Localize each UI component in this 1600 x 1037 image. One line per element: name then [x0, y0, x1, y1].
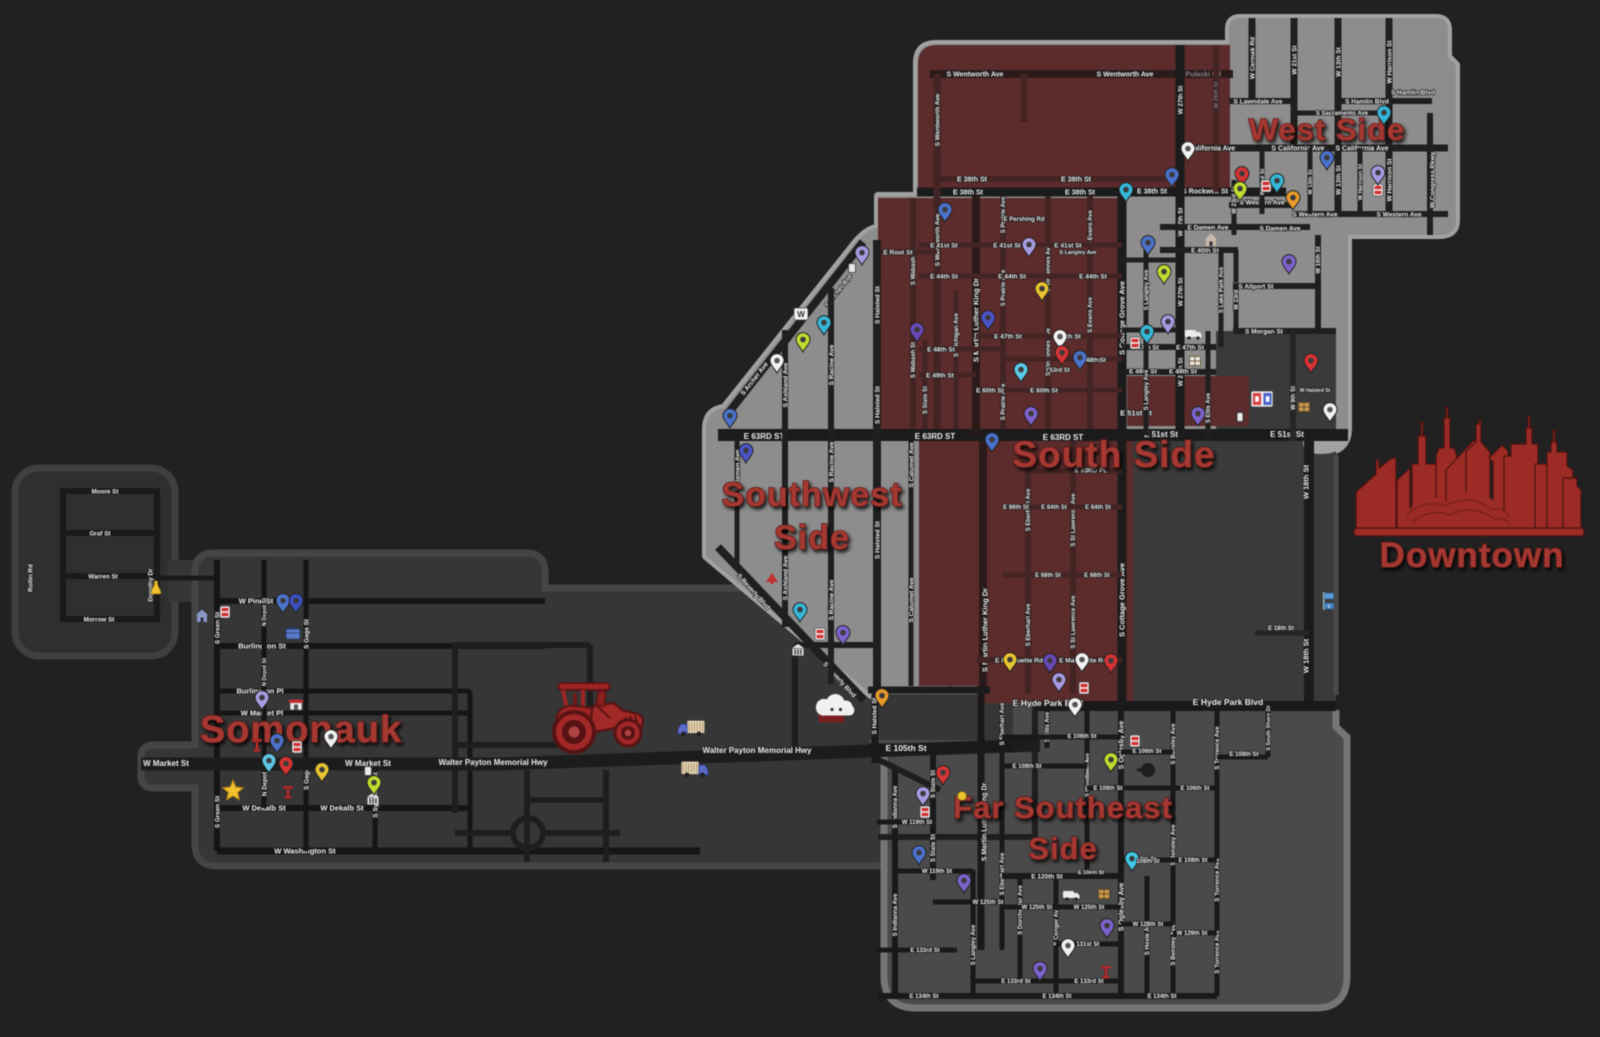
svg-text:W: W	[797, 310, 805, 319]
svg-text:S Bensley Ave: S Bensley Ave	[1171, 924, 1177, 966]
svg-text:E 41st St: E 41st St	[930, 242, 958, 249]
svg-text:S Evans Ave: S Evans Ave	[1088, 297, 1094, 333]
svg-text:S Wentworth Ave: S Wentworth Ave	[934, 213, 941, 266]
svg-text:E 64th St: E 64th St	[1085, 505, 1111, 511]
svg-text:E 133rd St: E 133rd St	[910, 948, 939, 954]
svg-text:S Wabash St: S Wabash St	[911, 342, 917, 378]
svg-text:S Cottage Grove Ave: S Cottage Grove Ave	[1118, 281, 1127, 355]
svg-text:S State St: S State St	[923, 386, 929, 414]
svg-text:E 10em St: E 10em St	[1078, 870, 1104, 876]
svg-text:Rollin Rd: Rollin Rd	[27, 564, 34, 592]
svg-text:S Western Ave: S Western Ave	[1293, 211, 1338, 218]
svg-text:W 119th St: W 119th St	[902, 820, 932, 826]
svg-text:S Langley Ave: S Langley Ave	[1144, 369, 1150, 410]
svg-text:E 134th St: E 134th St	[1147, 994, 1176, 1000]
svg-text:E 38th St: E 38th St	[1137, 189, 1168, 196]
svg-text:S Green St: S Green St	[214, 795, 221, 828]
svg-text:E 41st St: E 41st St	[1054, 242, 1082, 249]
svg-text:E 106th St: E 106th St	[1067, 734, 1096, 740]
svg-text:E 133rd St: E 133rd St	[1074, 979, 1103, 985]
svg-text:E 134th St: E 134th St	[909, 994, 938, 1000]
svg-text:E 48th St: E 48th St	[927, 346, 956, 353]
svg-text:E 60th St: E 60th St	[976, 387, 1005, 394]
svg-text:S Morgan St: S Morgan St	[1245, 328, 1284, 335]
svg-text:Moore St: Moore St	[92, 488, 120, 495]
svg-text:W 27th St: W 27th St	[1177, 207, 1184, 237]
svg-text:E 134th St: E 134th St	[1042, 994, 1071, 1000]
svg-text:W Congress Pkwy: W Congress Pkwy	[1429, 151, 1436, 208]
svg-text:E 106th St: E 106th St	[1180, 786, 1209, 792]
svg-text:S Wentworth Ave: S Wentworth Ave	[934, 93, 941, 146]
svg-text:W 13th St: W 13th St	[1335, 46, 1342, 76]
svg-text:48th St: 48th St	[1086, 358, 1106, 364]
svg-text:W Harrison St: W Harrison St	[1386, 158, 1393, 202]
svg-text:E 51st St: E 51st St	[1270, 430, 1304, 439]
svg-text:S Evans Ave: S Evans Ave	[1088, 210, 1094, 246]
svg-text:Dorothy Dr: Dorothy Dr	[147, 568, 154, 601]
svg-text:W 18th St: W 18th St	[1302, 638, 1311, 673]
svg-text:E 63RD ST: E 63RD ST	[915, 432, 956, 441]
svg-text:W 13th St: W 13th St	[1335, 164, 1342, 194]
svg-text:S State St: S State St	[931, 834, 937, 862]
svg-text:N Depot St: N Depot St	[262, 658, 268, 686]
svg-text:W 119th St: W 119th St	[922, 869, 952, 875]
svg-text:E Damen Ave: E Damen Ave	[1187, 224, 1228, 231]
svg-text:W 26th St: W 26th St	[1214, 81, 1220, 108]
svg-text:Far Southeast: Far Southeast	[953, 790, 1173, 825]
svg-text:S Eberhart Ave: S Eberhart Ave	[1026, 603, 1032, 646]
svg-text:S Oglesby Ave: S Oglesby Ave	[1119, 721, 1126, 770]
svg-text:E 18th St: E 18th St	[1268, 626, 1294, 632]
svg-text:E 41st St: E 41st St	[993, 242, 1021, 249]
svg-text:W Halsted St: W Halsted St	[1300, 388, 1331, 394]
svg-text:S Halsted St: S Halsted St	[874, 385, 881, 424]
svg-text:W 9th St: W 9th St	[1291, 386, 1297, 410]
svg-text:S Gage St: S Gage St	[303, 618, 310, 649]
svg-text:W Harrison St: W Harrison St	[1386, 40, 1393, 84]
svg-text:E 38th St: E 38th St	[957, 177, 988, 184]
svg-text:E 120th St: E 120th St	[1031, 873, 1063, 880]
svg-text:N Depot St: N Depot St	[262, 598, 268, 626]
svg-text:W Cermak Rd: W Cermak Rd	[1249, 37, 1256, 79]
svg-text:W 27th St: W 27th St	[1177, 85, 1184, 115]
svg-text:W 18th St: W 18th St	[1302, 464, 1311, 499]
svg-text:S Lawndale Ave: S Lawndale Ave	[1233, 98, 1282, 105]
svg-text:Walter Payton Memorial Hwy: Walter Payton Memorial Hwy	[702, 746, 812, 755]
svg-text:Side: Side	[1028, 831, 1097, 866]
svg-text:S Allport St: S Allport St	[1238, 283, 1274, 290]
svg-text:W Harrison St: W Harrison St	[1358, 164, 1364, 201]
svg-text:S Indianna Ave: S Indianna Ave	[893, 893, 899, 936]
svg-text:E 63RD ST: E 63RD ST	[744, 432, 785, 441]
svg-text:I 53rd St: I 53rd St	[1046, 368, 1070, 374]
svg-text:Walter Payton Memorial Hwy: Walter Payton Memorial Hwy	[438, 758, 548, 767]
svg-text:W 125th St: W 125th St	[1022, 905, 1053, 911]
svg-text:108th St: 108th St	[1136, 859, 1159, 865]
svg-text:S Halsted St: S Halsted St	[874, 520, 881, 559]
svg-text:S Wentworth Ave: S Wentworth Ave	[947, 72, 1004, 79]
svg-text:S Hamlin Blvd: S Hamlin Blvd	[1391, 89, 1435, 96]
svg-text:S Hamlin Blvd: S Hamlin Blvd	[1345, 98, 1389, 105]
svg-text:S Langley Ave: S Langley Ave	[1059, 250, 1096, 256]
svg-text:E 64th St: E 64th St	[1041, 505, 1067, 511]
svg-text:E Hyde Park Blvd: E Hyde Park Blvd	[1193, 697, 1263, 707]
svg-text:S Halsted St: S Halsted St	[871, 697, 878, 735]
svg-text:W 125th St: W 125th St	[1074, 905, 1105, 911]
svg-text:W 27th St: W 27th St	[1177, 277, 1184, 307]
svg-text:E 38th St: E 38th St	[953, 190, 984, 197]
svg-text:S Western Ave: S Western Ave	[1377, 211, 1422, 218]
svg-text:S Racine Ave: S Racine Ave	[828, 579, 835, 620]
svg-text:E 44th St: E 44th St	[1079, 273, 1108, 280]
svg-text:Morrow St: Morrow St	[84, 616, 116, 623]
svg-text:E 40th St: E 40th St	[1191, 247, 1220, 254]
svg-text:E 108th St: E 108th St	[1012, 764, 1041, 770]
svg-text:W 125th St: W 125th St	[973, 900, 1004, 906]
svg-text:S Torrence Ave: S Torrence Ave	[1215, 858, 1221, 902]
svg-text:W Dekalb St: W Dekalb St	[320, 804, 364, 813]
svg-text:S Rockwell St: S Rockwell St	[1182, 189, 1229, 196]
svg-text:W Market St: W Market St	[143, 759, 189, 768]
svg-text:S St Lawrence Ave: S St Lawrence Ave	[1071, 493, 1077, 547]
svg-text:E Pershing Rd: E Pershing Rd	[1003, 217, 1044, 223]
svg-text:S Damen Ave: S Damen Ave	[1259, 225, 1300, 232]
svg-text:W 129th St: W 129th St	[1177, 931, 1208, 937]
svg-text:E 38th St: E 38th St	[1061, 177, 1092, 184]
svg-text:S Racine Ave: S Racine Ave	[828, 344, 835, 385]
svg-text:E 38th St: E 38th St	[1065, 190, 1096, 197]
svg-text:E 108th St: E 108th St	[1178, 858, 1207, 864]
svg-text:Graf St: Graf St	[90, 530, 112, 537]
svg-text:S Halsted St: S Halsted St	[874, 285, 881, 324]
svg-text:Downtown: Downtown	[1380, 536, 1565, 575]
svg-text:W 16th St: W 16th St	[1316, 246, 1322, 273]
svg-text:E 68th St: E 68th St	[1035, 573, 1061, 579]
svg-text:E 47th St: E 47th St	[1176, 344, 1205, 351]
svg-text:E 44th St: E 44th St	[930, 273, 959, 280]
svg-text:S Wentworth Ave: S Wentworth Ave	[1097, 72, 1154, 79]
svg-text:S Langley Ave: S Langley Ave	[1144, 269, 1150, 310]
svg-text:S Torrence Ave: S Torrence Ave	[1215, 930, 1221, 974]
svg-text:E 44th St: E 44th St	[998, 273, 1027, 280]
svg-text:E 49th St: E 49th St	[1169, 368, 1198, 375]
svg-text:California Ave: California Ave	[1189, 146, 1236, 153]
svg-text:S Bensley Ave: S Bensley Ave	[1171, 723, 1177, 765]
svg-text:W 21st St: W 21st St	[1291, 45, 1298, 75]
svg-text:Southwest: Southwest	[722, 476, 903, 514]
svg-text:S Ellis Ave: S Ellis Ave	[1206, 392, 1212, 423]
svg-text:South Side: South Side	[1012, 434, 1215, 475]
svg-text:E 108th St: E 108th St	[1229, 752, 1258, 758]
svg-text:W Pine St: W Pine St	[239, 597, 274, 606]
svg-text:Side: Side	[774, 519, 850, 557]
svg-text:S Calumet Ave: S Calumet Ave	[908, 577, 915, 622]
svg-text:E 60th St: E 60th St	[1030, 387, 1059, 394]
svg-text:E Root St: E Root St	[883, 249, 913, 256]
svg-text:S Torrence Ave: S Torrence Ave	[1215, 726, 1221, 770]
svg-text:W 13th St: W 13th St	[1308, 169, 1314, 194]
svg-text:E 105th St: E 105th St	[885, 743, 926, 753]
svg-text:S Calumet Ave: S Calumet Ave	[908, 442, 915, 487]
svg-text:E 106th St: E 106th St	[1132, 749, 1161, 755]
svg-text:E 47th St: E 47th St	[994, 333, 1023, 340]
svg-text:E 66th St: E 66th St	[1003, 505, 1029, 511]
svg-text:S Langley Ave: S Langley Ave	[971, 924, 977, 965]
svg-text:S South Shore Dr: S South Shore Dr	[1266, 704, 1272, 750]
svg-text:S Ashland Ave: S Ashland Ave	[782, 555, 789, 600]
svg-text:E 133rd St: E 133rd St	[1001, 979, 1030, 985]
svg-text:E Marquette Rd: E Marquette Rd	[995, 657, 1043, 664]
svg-text:S Prairie Ave: S Prairie Ave	[1001, 196, 1007, 233]
svg-text:Warren St: Warren St	[88, 573, 118, 580]
svg-text:S Conger Ave: S Conger Ave	[1054, 906, 1060, 946]
svg-text:E 68th St: E 68th St	[1084, 573, 1110, 579]
svg-text:E 49th St: E 49th St	[926, 372, 955, 379]
svg-text:S Lake Park Ave: S Lake Park Ave	[1219, 266, 1225, 313]
svg-text:S Ashland Ave: S Ashland Ave	[782, 362, 789, 407]
svg-text:W 128th St: W 128th St	[1133, 922, 1164, 928]
svg-text:S St Lawrence Ave: S St Lawrence Ave	[1071, 595, 1077, 649]
